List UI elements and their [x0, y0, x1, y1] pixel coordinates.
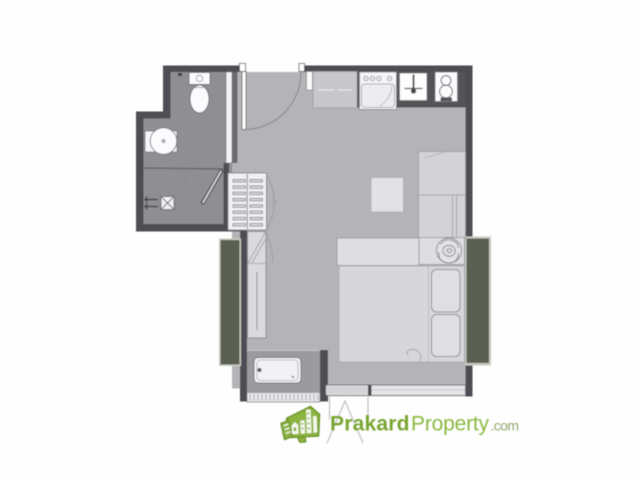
- svg-text:.com: .com: [491, 418, 520, 434]
- svg-text:Property: Property: [411, 413, 490, 436]
- svg-text:Prakard: Prakard: [330, 413, 410, 436]
